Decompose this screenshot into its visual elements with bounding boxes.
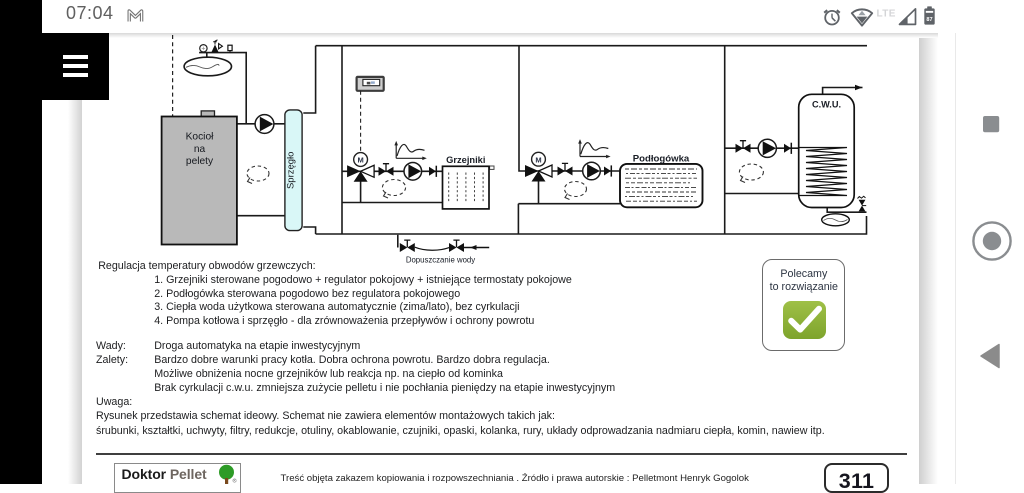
svg-text:Sprzęgło: Sprzęgło bbox=[286, 152, 297, 190]
svg-text:Grzejniki: Grzejniki bbox=[446, 155, 485, 165]
svg-text:na: na bbox=[194, 144, 206, 155]
svg-text:C.W.U.: C.W.U. bbox=[812, 100, 841, 110]
svg-text:®: ® bbox=[233, 477, 237, 484]
svg-text:M: M bbox=[357, 156, 363, 165]
svg-text:Kocioł: Kocioł bbox=[186, 132, 214, 143]
svg-text:M: M bbox=[535, 155, 541, 164]
svg-text:Dopuszczanie wody: Dopuszczanie wody bbox=[406, 256, 475, 265]
svg-text:Podłogówka: Podłogówka bbox=[633, 154, 690, 165]
svg-text:pelety: pelety bbox=[186, 156, 214, 167]
